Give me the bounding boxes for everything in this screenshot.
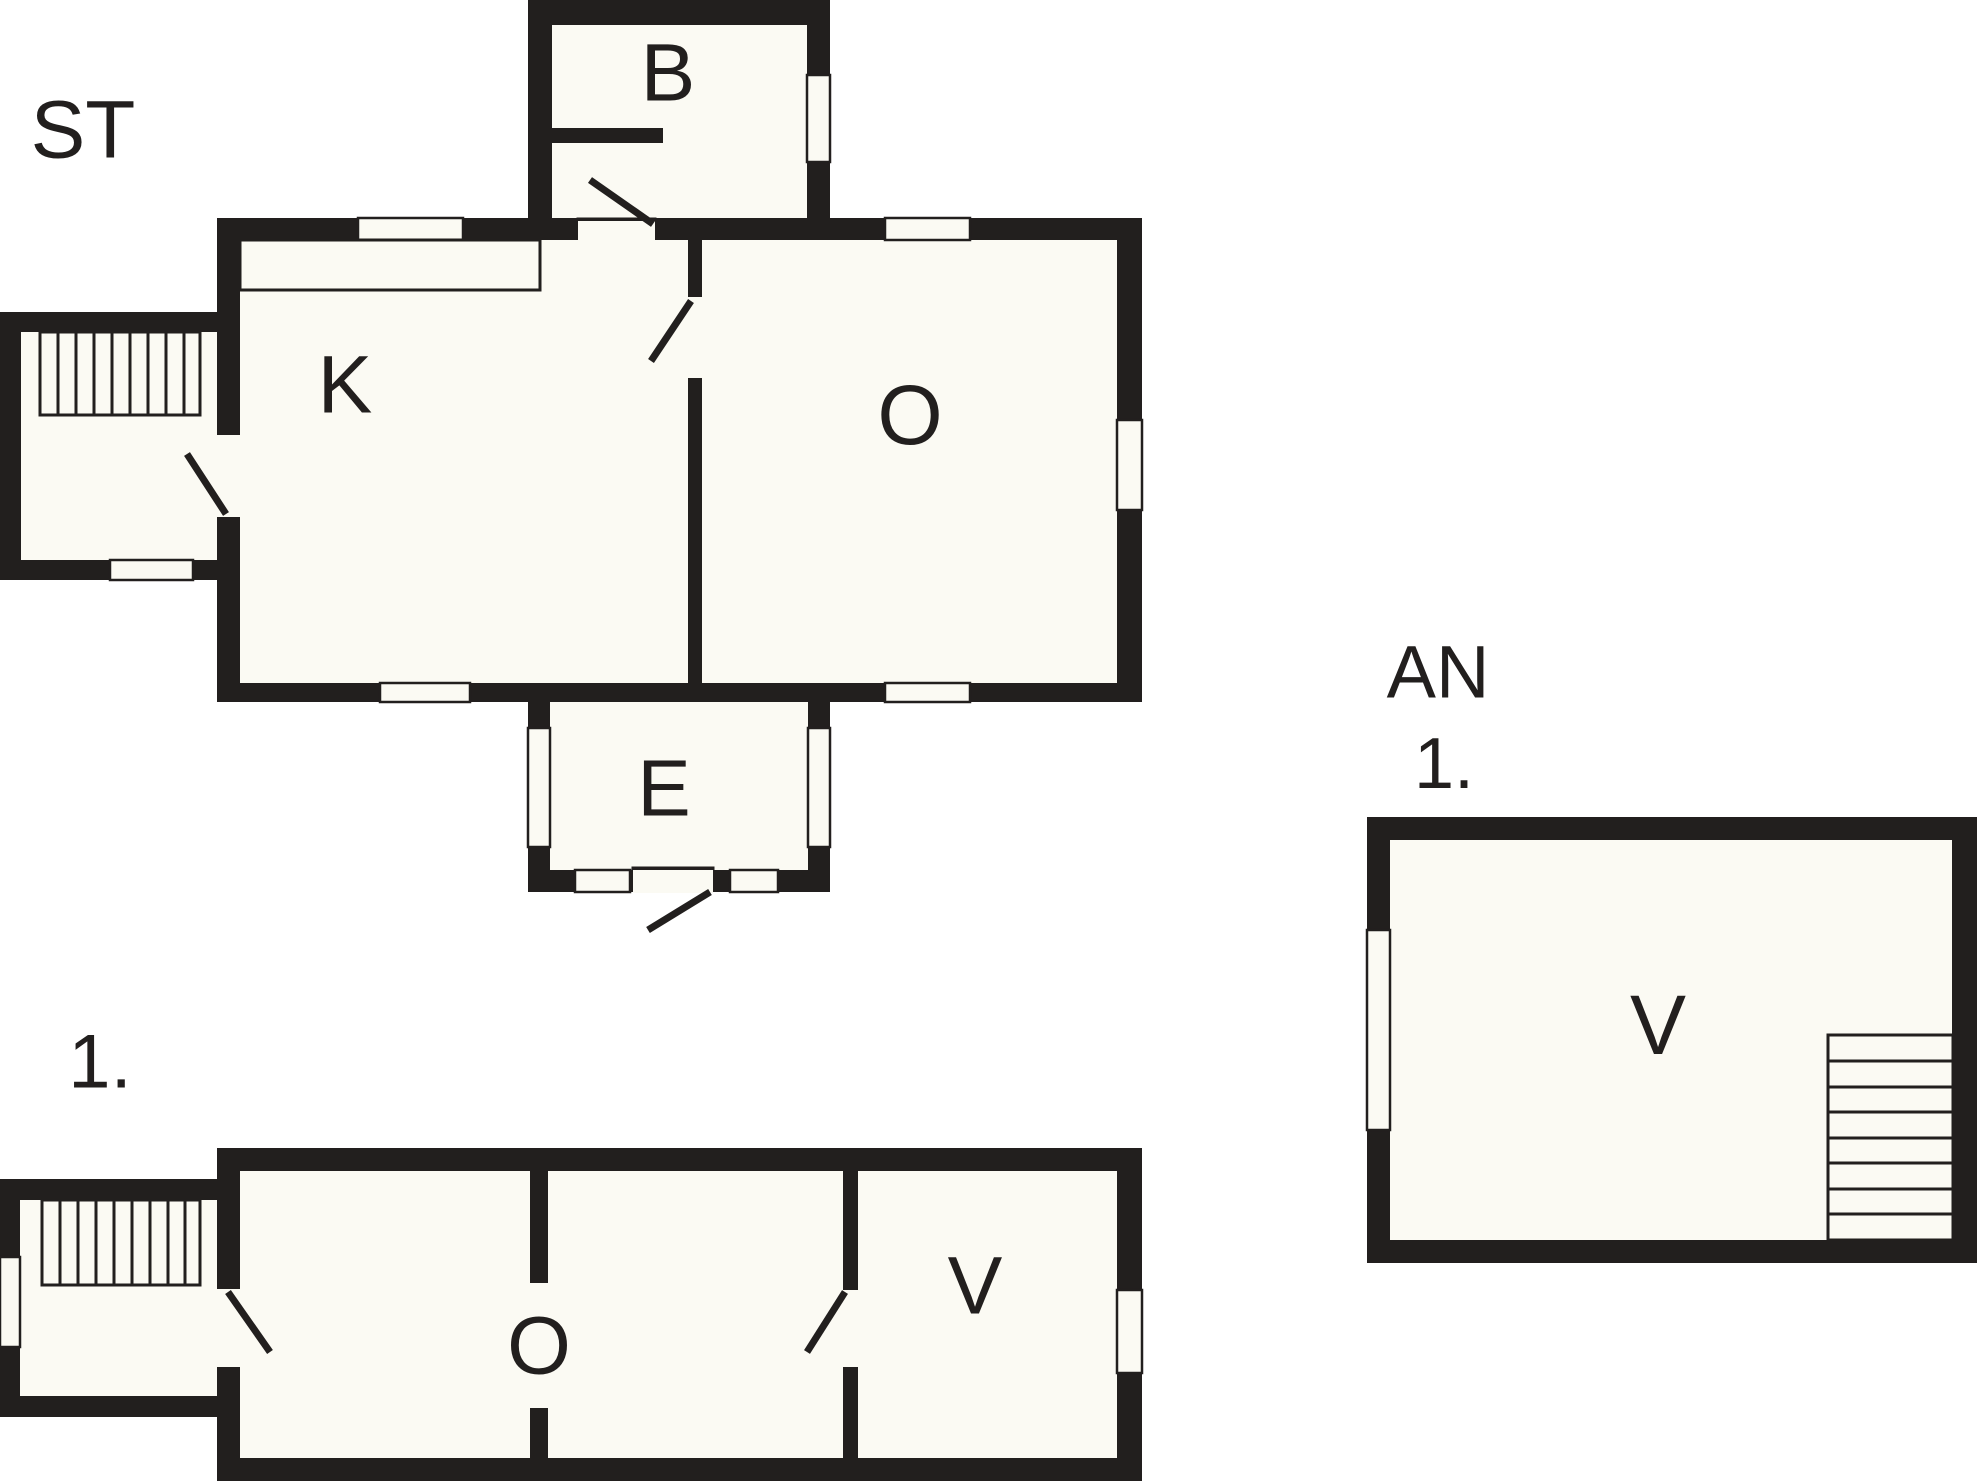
st-plan-title: ST (31, 85, 136, 176)
st-kitchen-counter (240, 240, 540, 290)
st-window-right (1117, 420, 1142, 510)
annex-top-wall (1367, 817, 1977, 840)
first-top-wall (217, 1148, 1142, 1171)
st-window-top-left (358, 218, 463, 240)
annex-window-left (1367, 930, 1390, 1130)
st-stairwell-floor (0, 312, 240, 580)
first-passage-wall-top (530, 1171, 548, 1283)
first-room-label-o: O (507, 1301, 571, 1392)
st-window-b-right (807, 75, 830, 162)
st-room-label-o: O (877, 368, 942, 462)
st-window-e-left (528, 728, 550, 847)
annex-plan: AN 1. V (1367, 631, 1977, 1264)
first-window-right (1117, 1290, 1142, 1373)
st-top-wall (217, 218, 1142, 240)
st-ko-door-opening (688, 297, 702, 378)
floorplan-canvas: ST B K O E (0, 0, 1980, 1483)
first-plan-title: 1. (68, 1020, 131, 1105)
annex-plan-subtitle: 1. (1414, 724, 1474, 804)
annex-room-label-v: V (1630, 978, 1686, 1072)
st-room-label-k: K (318, 340, 373, 431)
st-plan: ST B K O E (0, 0, 1142, 930)
st-window-bottom-right (885, 683, 970, 702)
floorplan-drawing: ST B K O E (0, 0, 1980, 1483)
st-stairwell-top-wall (0, 312, 222, 332)
first-divider-ov-top (843, 1171, 858, 1290)
st-window-e-bottom-right (730, 870, 778, 892)
st-b-partition-wall (552, 128, 663, 143)
first-window-stairwell-left (0, 1257, 20, 1347)
first-bottom-wall (217, 1458, 1142, 1481)
st-window-e-right (808, 728, 830, 847)
st-room-label-b: B (641, 28, 696, 119)
first-room-label-v: V (948, 1241, 1003, 1332)
first-main-floor (217, 1148, 1142, 1481)
st-window-bottom-left (380, 683, 470, 702)
annex-plan-title: AN (1387, 631, 1490, 714)
st-entry-door-opening (633, 869, 713, 893)
first-stairwell-floor (0, 1179, 240, 1417)
first-floor-plan: 1. O V (0, 1020, 1142, 1482)
st-window-top-right (885, 218, 970, 240)
st-entry-door-leaf (648, 892, 710, 930)
first-passage-wall-bottom (530, 1408, 548, 1458)
st-window-stairwell-bottom (110, 560, 193, 580)
st-b-top-wall (528, 0, 830, 25)
first-stairwell-bottom-wall (0, 1396, 240, 1417)
st-b-left-wall (528, 0, 552, 240)
st-entry-door-threshold (633, 868, 713, 869)
first-stairwell-top-wall (0, 1179, 222, 1200)
st-window-e-bottom-left (575, 870, 630, 892)
annex-right-wall (1952, 817, 1977, 1263)
st-bottom-wall (217, 683, 1142, 702)
annex-bottom-wall (1367, 1240, 1977, 1263)
st-stairwell-left-wall (0, 312, 21, 580)
st-room-label-e: E (637, 744, 690, 833)
first-divider-ov-bottom (843, 1367, 858, 1458)
